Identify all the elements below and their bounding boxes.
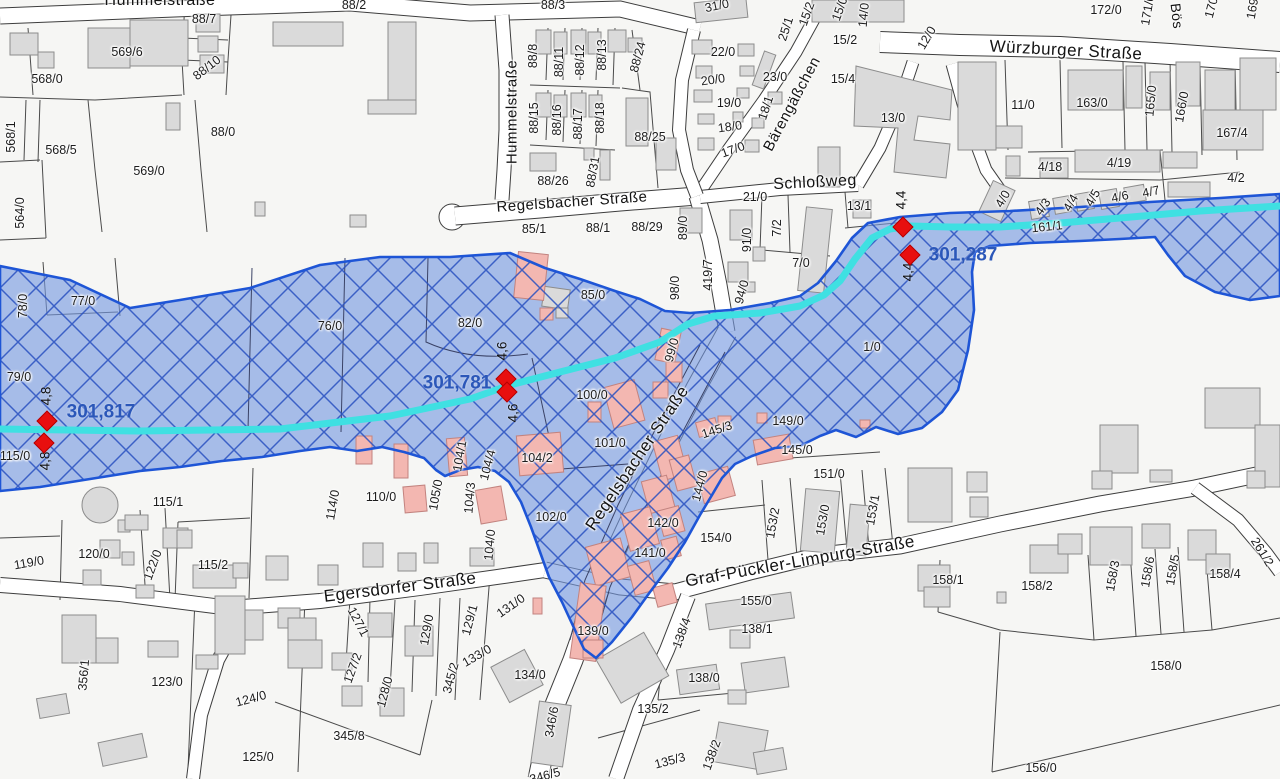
- gauge-value-label: 301,287: [929, 246, 998, 265]
- parcel-label: 115/0: [0, 450, 30, 463]
- parcel-label: 172/0: [1090, 4, 1121, 17]
- parcel-label: 102/0: [535, 511, 566, 524]
- parcel-label: 161/1: [1031, 219, 1063, 235]
- parcel-label: 419/7: [702, 259, 715, 290]
- parcel-label: 100/0: [576, 389, 607, 402]
- parcel-label: 569/0: [133, 165, 164, 178]
- parcel-label: 139/0: [577, 625, 608, 638]
- parcel-label: 115/1: [153, 496, 183, 509]
- parcel-label: 82/0: [458, 317, 482, 330]
- parcel-label: 356/1: [76, 659, 91, 691]
- parcel-label: 4/18: [1038, 161, 1062, 174]
- parcel-label: 134/0: [514, 669, 545, 682]
- parcel-label: 4/19: [1107, 157, 1131, 170]
- parcel-label: 151/0: [813, 468, 844, 481]
- parcel-label: 23/0: [763, 71, 787, 84]
- parcel-label: 158/0: [1150, 660, 1181, 673]
- parcel-label: 85/0: [581, 289, 605, 302]
- street-label: Hummelstraße: [505, 60, 520, 164]
- parcel-label: 78/0: [17, 294, 30, 318]
- flood-depth-label: 4,8: [39, 387, 53, 406]
- parcel-label: 91/0: [741, 228, 754, 252]
- flood-depth-label: 4,4: [894, 191, 908, 210]
- parcel-label: 145/0: [781, 444, 812, 457]
- parcel-label: 85/1: [522, 223, 546, 236]
- parcel-label: 138/1: [741, 623, 772, 636]
- parcel-label: 88/18: [594, 102, 607, 133]
- parcel-label: 15/4: [831, 73, 855, 86]
- parcel-label: 13/0: [881, 112, 905, 125]
- parcel-label: 156/0: [1025, 762, 1056, 775]
- parcel-label: 167/4: [1216, 127, 1247, 140]
- street-label: Bös: [1168, 2, 1185, 29]
- parcel-label: 123/0: [151, 676, 182, 689]
- parcel-label: 14/0: [857, 2, 872, 27]
- flood-depth-label: 4,6: [495, 342, 509, 361]
- parcel-label: 88/7: [192, 13, 216, 26]
- parcel-label: 98/0: [669, 276, 682, 300]
- parcel-label: 165/0: [1143, 85, 1158, 117]
- parcel-label: 568/0: [31, 73, 62, 86]
- parcel-label: 564/0: [14, 197, 27, 228]
- parcel-label: 7/2: [771, 219, 784, 236]
- parcel-label: 13/1: [847, 200, 871, 213]
- parcel-label: 77/0: [71, 295, 95, 308]
- parcel-label: 88/11: [553, 47, 566, 77]
- flood-depth-label: 4,8: [38, 452, 52, 471]
- parcel-label: 158/4: [1209, 568, 1240, 581]
- parcel-label: 88/8: [527, 44, 540, 68]
- parcel-label: 115/2: [198, 559, 228, 572]
- flood-depth-label: 4,6: [506, 404, 520, 423]
- parcel-label: 7/0: [792, 257, 809, 270]
- parcel-label: 88/2: [342, 0, 366, 11]
- parcel-label: 88/26: [537, 175, 568, 188]
- parcel-label: 11/0: [1011, 99, 1034, 112]
- parcel-label: 22/0: [711, 46, 735, 59]
- parcel-label: 125/0: [242, 751, 273, 764]
- parcel-label: 88/13: [596, 39, 609, 70]
- parcel-label: 79/0: [7, 371, 31, 384]
- parcel-label: 138/0: [688, 672, 719, 685]
- parcel-label: 4/2: [1227, 172, 1244, 185]
- parcel-label: 110/0: [366, 491, 396, 504]
- parcel-label: 19/0: [717, 97, 741, 110]
- parcel-label: 89/0: [677, 216, 690, 240]
- parcel-label: 88/15: [528, 102, 541, 133]
- parcel-label: 88/1: [586, 222, 610, 235]
- parcel-label: 88/25: [634, 131, 665, 144]
- gauge-value-label: 301,817: [67, 403, 136, 422]
- parcel-label: 88/29: [631, 221, 662, 234]
- parcel-label: 104/3: [462, 482, 477, 514]
- basemap-svg: [0, 0, 1280, 779]
- flood-zone-hatch: [0, 194, 1280, 658]
- parcel-label: 569/6: [111, 46, 142, 59]
- parcel-label: 154/0: [700, 532, 731, 545]
- parcel-label: 104/2: [521, 452, 552, 465]
- parcel-label: 1/0: [863, 341, 880, 354]
- parcel-label: 120/0: [78, 548, 109, 561]
- parcel-label: 158/1: [932, 574, 963, 587]
- parcel-label: 76/0: [318, 320, 342, 333]
- parcel-label: 101/0: [594, 437, 625, 450]
- parcel-label: 345/8: [333, 730, 364, 743]
- flood-depth-label: 4,4: [901, 263, 915, 282]
- parcel-label: 88/17: [572, 108, 585, 139]
- parcel-label: 141/0: [634, 547, 665, 560]
- parcel-label: 88/16: [551, 104, 564, 135]
- parcel-label: 104/0: [482, 529, 497, 561]
- parcel-label: 18/0: [717, 119, 743, 135]
- parcel-label: 135/2: [637, 703, 668, 716]
- parcel-label: 21/0: [743, 191, 767, 204]
- parcel-label: 149/0: [772, 415, 803, 428]
- parcel-label: 568/1: [5, 121, 18, 152]
- parcel-label: 88/3: [541, 0, 565, 11]
- parcel-label: 163/0: [1076, 97, 1107, 110]
- parcel-label: 20/0: [700, 72, 726, 88]
- parcel-label: 88/0: [211, 126, 235, 139]
- parcel-label: 568/5: [45, 144, 76, 157]
- street-label: Hummelstraße: [105, 0, 216, 9]
- parcel-label: 88/12: [574, 44, 587, 75]
- parcel-label: 155/0: [740, 595, 771, 608]
- gauge-value-label: 301,781: [423, 374, 492, 393]
- parcel-label: 158/2: [1021, 580, 1052, 593]
- parcel-label: 142/0: [647, 517, 678, 530]
- flood-map-canvas[interactable]: 88/7569/688/10568/088/288/3568/1568/5569…: [0, 0, 1280, 779]
- parcel-label: 15/2: [833, 34, 857, 47]
